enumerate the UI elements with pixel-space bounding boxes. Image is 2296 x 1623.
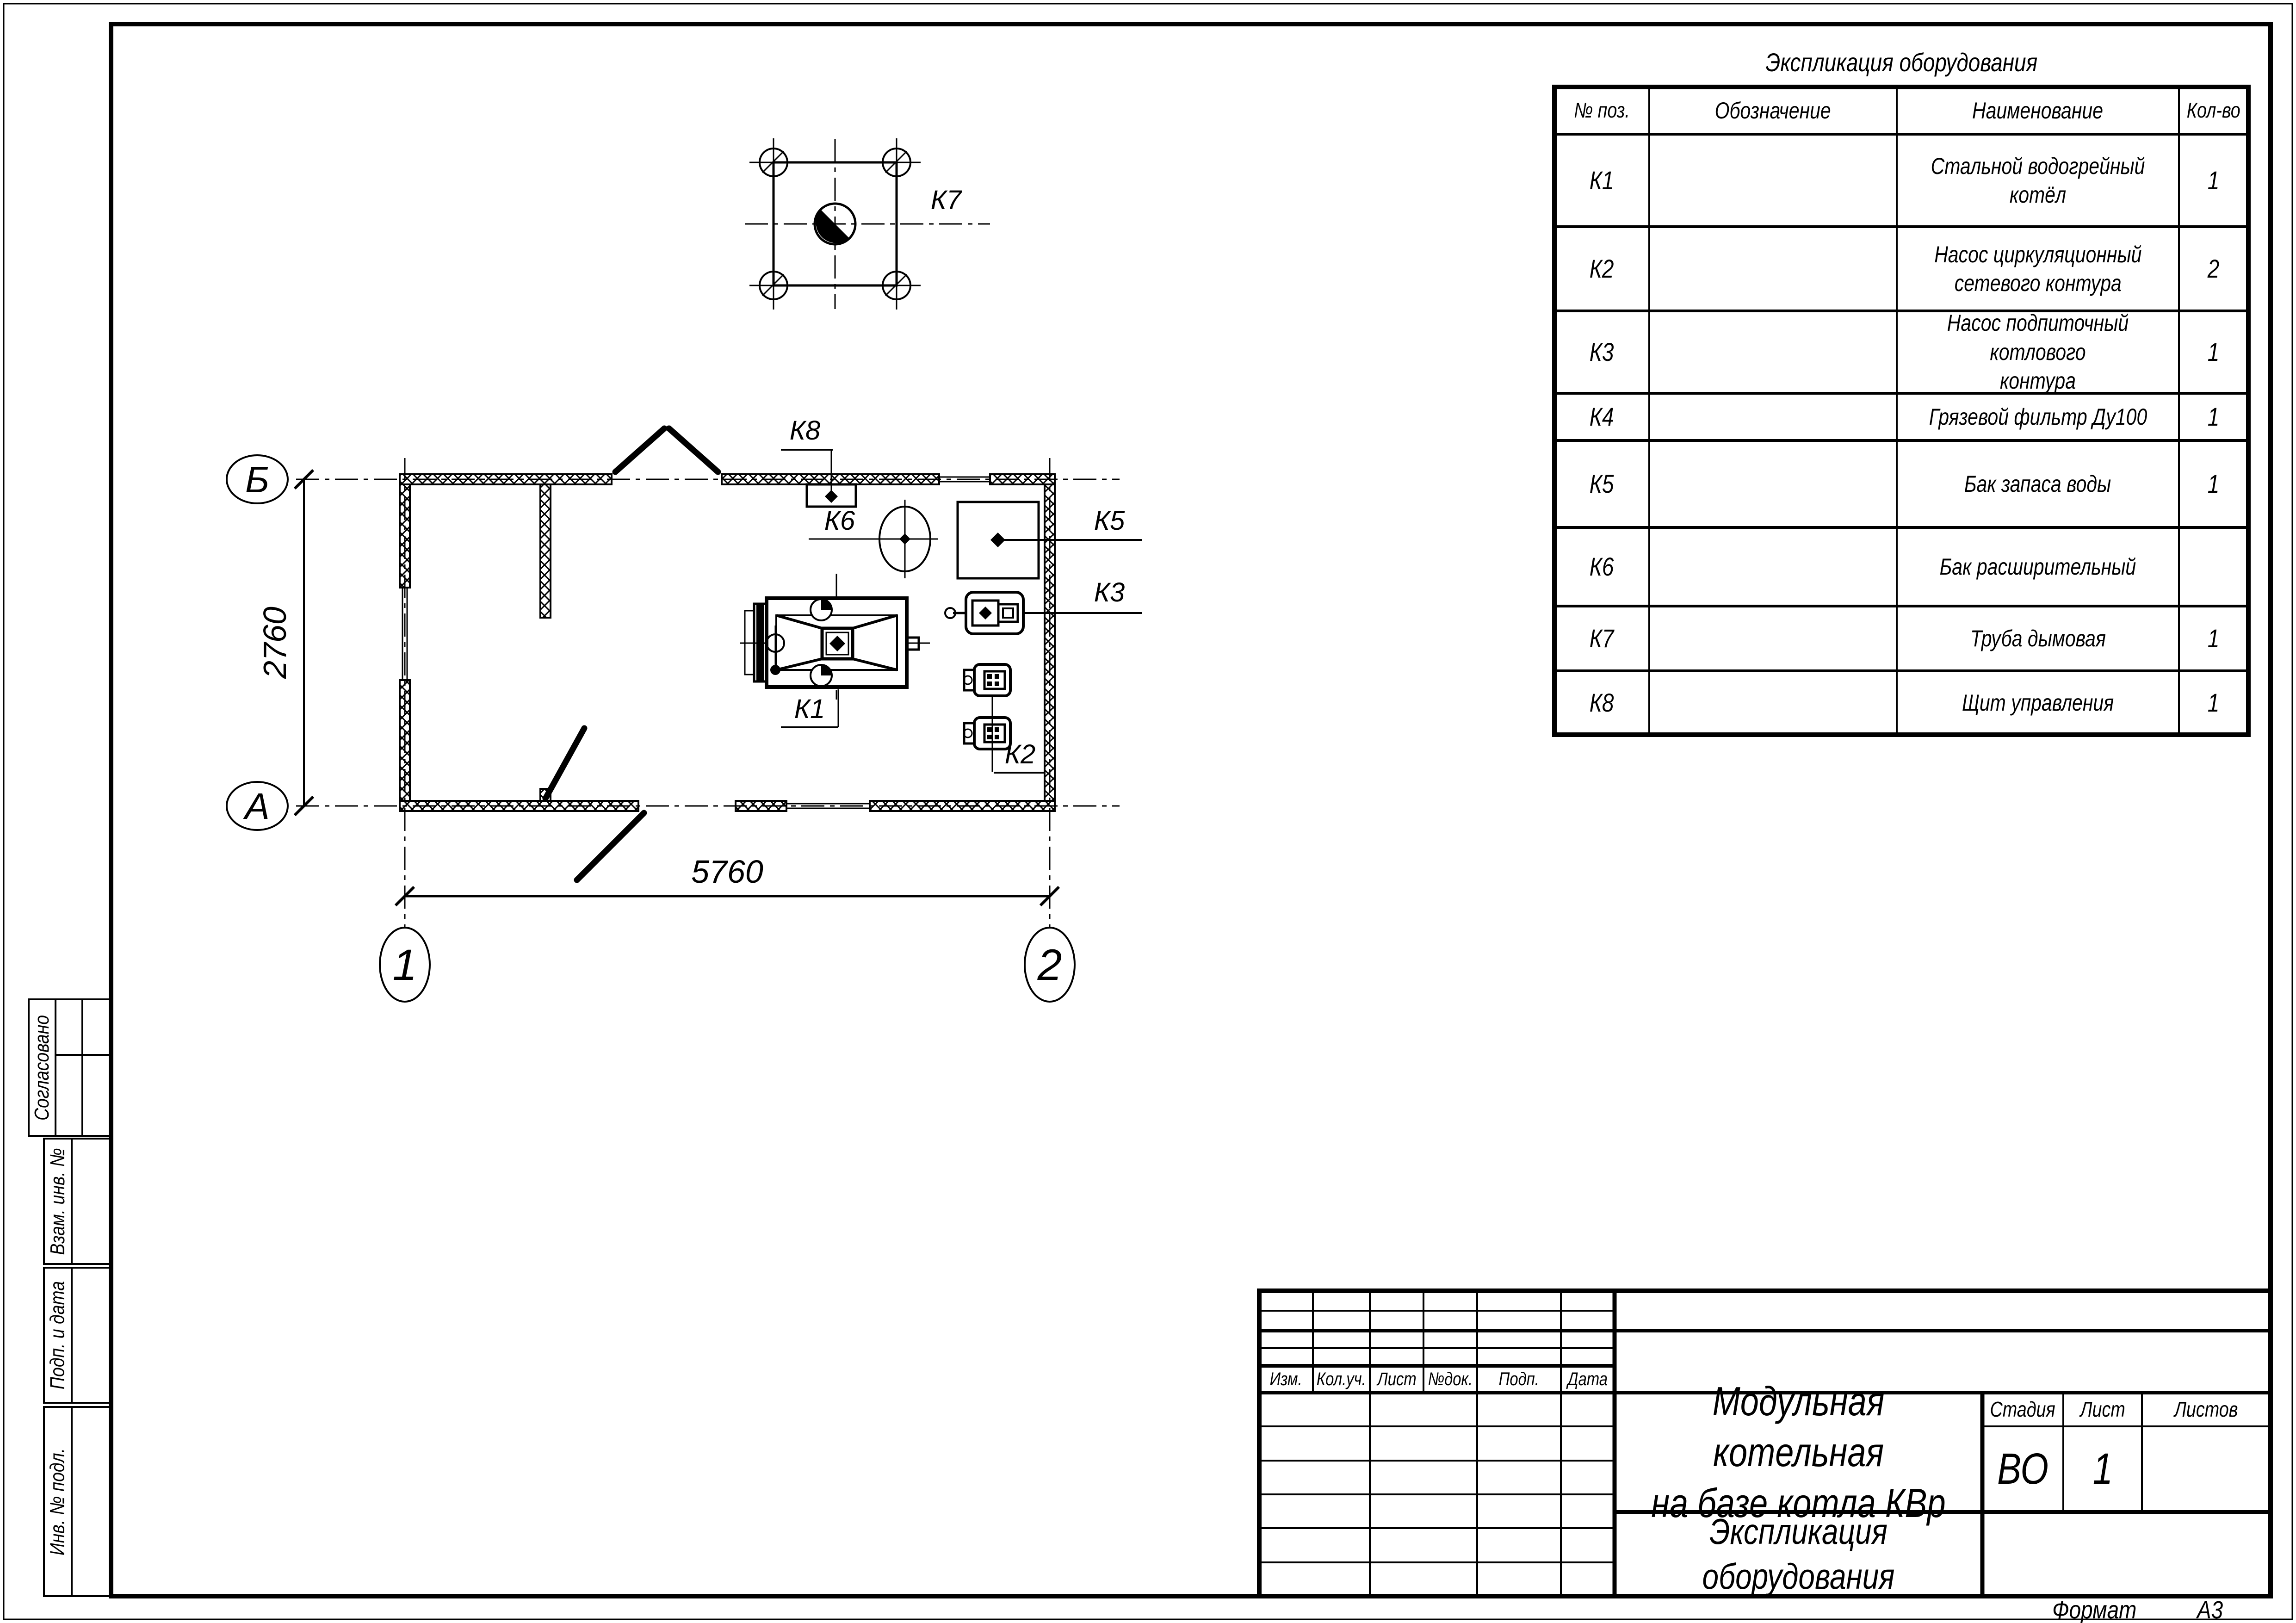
axis-label-2: 2 — [1037, 941, 1062, 990]
eq-row-name: Стальной водогрейный котёл — [1897, 134, 2179, 227]
format-value: А3 — [2197, 1596, 2223, 1623]
rev-header-data: Дата — [1561, 1366, 1615, 1393]
rev-header-ndok: №док. — [1423, 1366, 1477, 1393]
rev-header-izm: Изм. — [1259, 1366, 1313, 1393]
eq-row-name: Насос циркуляционный сетевого контура — [1897, 227, 2179, 311]
format-label: Формат — [2052, 1596, 2136, 1623]
rev-header-podp: Подп. — [1477, 1366, 1561, 1393]
sheets-label: Листов — [2142, 1393, 2271, 1426]
eq-header-name: Наименование — [1897, 87, 2179, 134]
sheet-label: Лист — [2063, 1393, 2142, 1426]
dim-text-2760: 2760 — [257, 607, 293, 679]
eq-row-pos: К7 — [1554, 606, 1649, 671]
eq-row-name: Бак запаса воды — [1897, 440, 2179, 527]
eq-row-name: Грязевой фильтр Ду100 — [1897, 393, 2179, 440]
eq-row-pos: К2 — [1554, 227, 1649, 311]
pump-k3: К3 — [945, 577, 1142, 634]
tag-k7: К7 — [931, 185, 963, 215]
tag-k5: К5 — [1094, 506, 1125, 536]
stamp-vzam-inv: Взам. инв. № — [44, 1139, 72, 1264]
equipment-table-title: Экспликация оборудования — [1554, 42, 2248, 83]
control-panel-k8: К8 — [781, 415, 856, 507]
eq-row-qty — [2179, 527, 2248, 606]
door-leaves — [545, 428, 736, 880]
rev-header-koluch: Кол.уч. — [1313, 1366, 1370, 1393]
dimension-vertical-2760: 2760 — [257, 470, 313, 815]
drawing-sheet: Б А 1 2 2760 5760 — [0, 0, 2296, 1623]
axis-label-1: 1 — [393, 941, 417, 990]
eq-row-pos: К5 — [1554, 440, 1649, 527]
eq-row-pos: К8 — [1554, 671, 1649, 735]
axis-label-b: Б — [245, 459, 269, 500]
eq-row-pos: К6 — [1554, 527, 1649, 606]
eq-header-designation: Обозначение — [1649, 87, 1897, 134]
stage-value: ВО — [1982, 1426, 2063, 1512]
boiler-k1: К1 — [740, 574, 930, 727]
eq-row-name: Труба дымовая — [1897, 606, 2179, 671]
eq-row-qty: 2 — [2179, 227, 2248, 311]
axis-bubbles: Б А 1 2 — [227, 455, 1075, 1002]
eq-row-name: Бак расширительный — [1897, 527, 2179, 606]
stage-label: Стадия — [1982, 1393, 2063, 1426]
axis-label-a: А — [243, 786, 269, 827]
tag-k8: К8 — [790, 415, 820, 446]
doc-title: Экспликация оборудования — [1615, 1512, 1982, 1596]
stamp-podp-data: Подп. и дата — [44, 1268, 72, 1403]
eq-row-qty: 1 — [2179, 311, 2248, 393]
pumps-k2: К2 — [964, 664, 1046, 773]
eq-row-name: Щит управления — [1897, 671, 2179, 735]
tag-k1: К1 — [794, 694, 825, 724]
tag-k3: К3 — [1094, 577, 1125, 607]
eq-header-pos: № поз. — [1554, 87, 1649, 134]
dimension-horizontal-5760: 5760 — [396, 854, 1059, 905]
eq-row-pos: К4 — [1554, 393, 1649, 440]
expansion-tank-k6: К6 — [809, 500, 938, 578]
eq-row-qty: 1 — [2179, 606, 2248, 671]
eq-row-qty: 1 — [2179, 134, 2248, 227]
sheets-value — [2142, 1426, 2271, 1512]
rev-header-list: Лист — [1370, 1366, 1423, 1393]
stamp-inv-podl: Инв. № подл. — [44, 1407, 72, 1596]
tag-k6: К6 — [824, 506, 855, 536]
eq-row-name: Насос подпиточный котлового контура — [1897, 311, 2179, 393]
project-title: Модульная котельная на базе котла КВр — [1615, 1393, 1982, 1512]
dim-text-5760: 5760 — [691, 854, 763, 890]
eq-row-pos: К3 — [1554, 311, 1649, 393]
eq-row-pos: К1 — [1554, 134, 1649, 227]
eq-row-qty: 1 — [2179, 671, 2248, 735]
tag-k2: К2 — [1005, 739, 1035, 769]
eq-row-qty: 1 — [2179, 440, 2248, 527]
eq-header-qty: Кол-во — [2179, 87, 2248, 134]
format-note: Формат А3 — [2026, 1598, 2244, 1622]
sheet-value: 1 — [2063, 1426, 2142, 1512]
stamp-soglasovano: Согласовано — [29, 999, 56, 1136]
eq-row-qty: 1 — [2179, 393, 2248, 440]
